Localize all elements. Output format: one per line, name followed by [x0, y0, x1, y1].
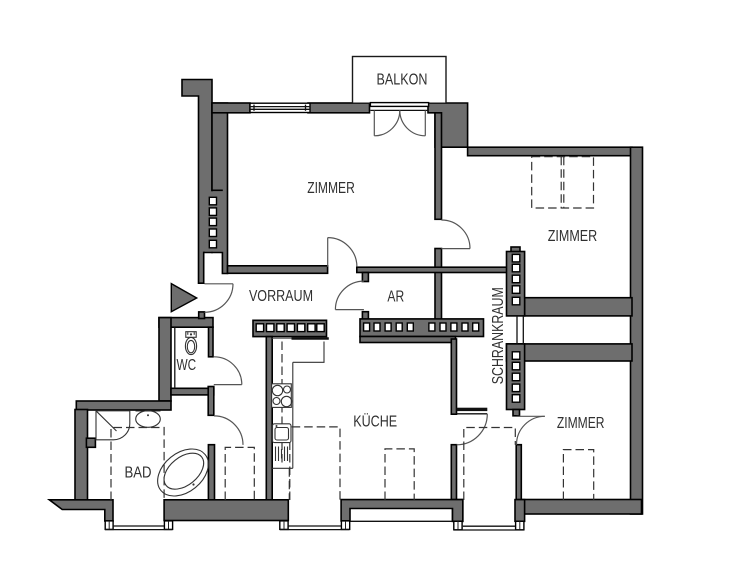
svg-text:ZIMMER: ZIMMER — [557, 414, 605, 432]
svg-text:KÜCHE: KÜCHE — [353, 411, 397, 430]
svg-text:ZIMMER: ZIMMER — [307, 179, 355, 197]
svg-text:WC: WC — [176, 356, 196, 373]
svg-text:BALKON: BALKON — [377, 70, 428, 88]
svg-text:AR: AR — [387, 287, 404, 305]
svg-text:ZIMMER: ZIMMER — [548, 227, 597, 245]
svg-text:SCHRANKRAUM: SCHRANKRAUM — [489, 287, 507, 384]
svg-text:VORRAUM: VORRAUM — [249, 287, 313, 305]
svg-text:BAD: BAD — [124, 464, 151, 481]
